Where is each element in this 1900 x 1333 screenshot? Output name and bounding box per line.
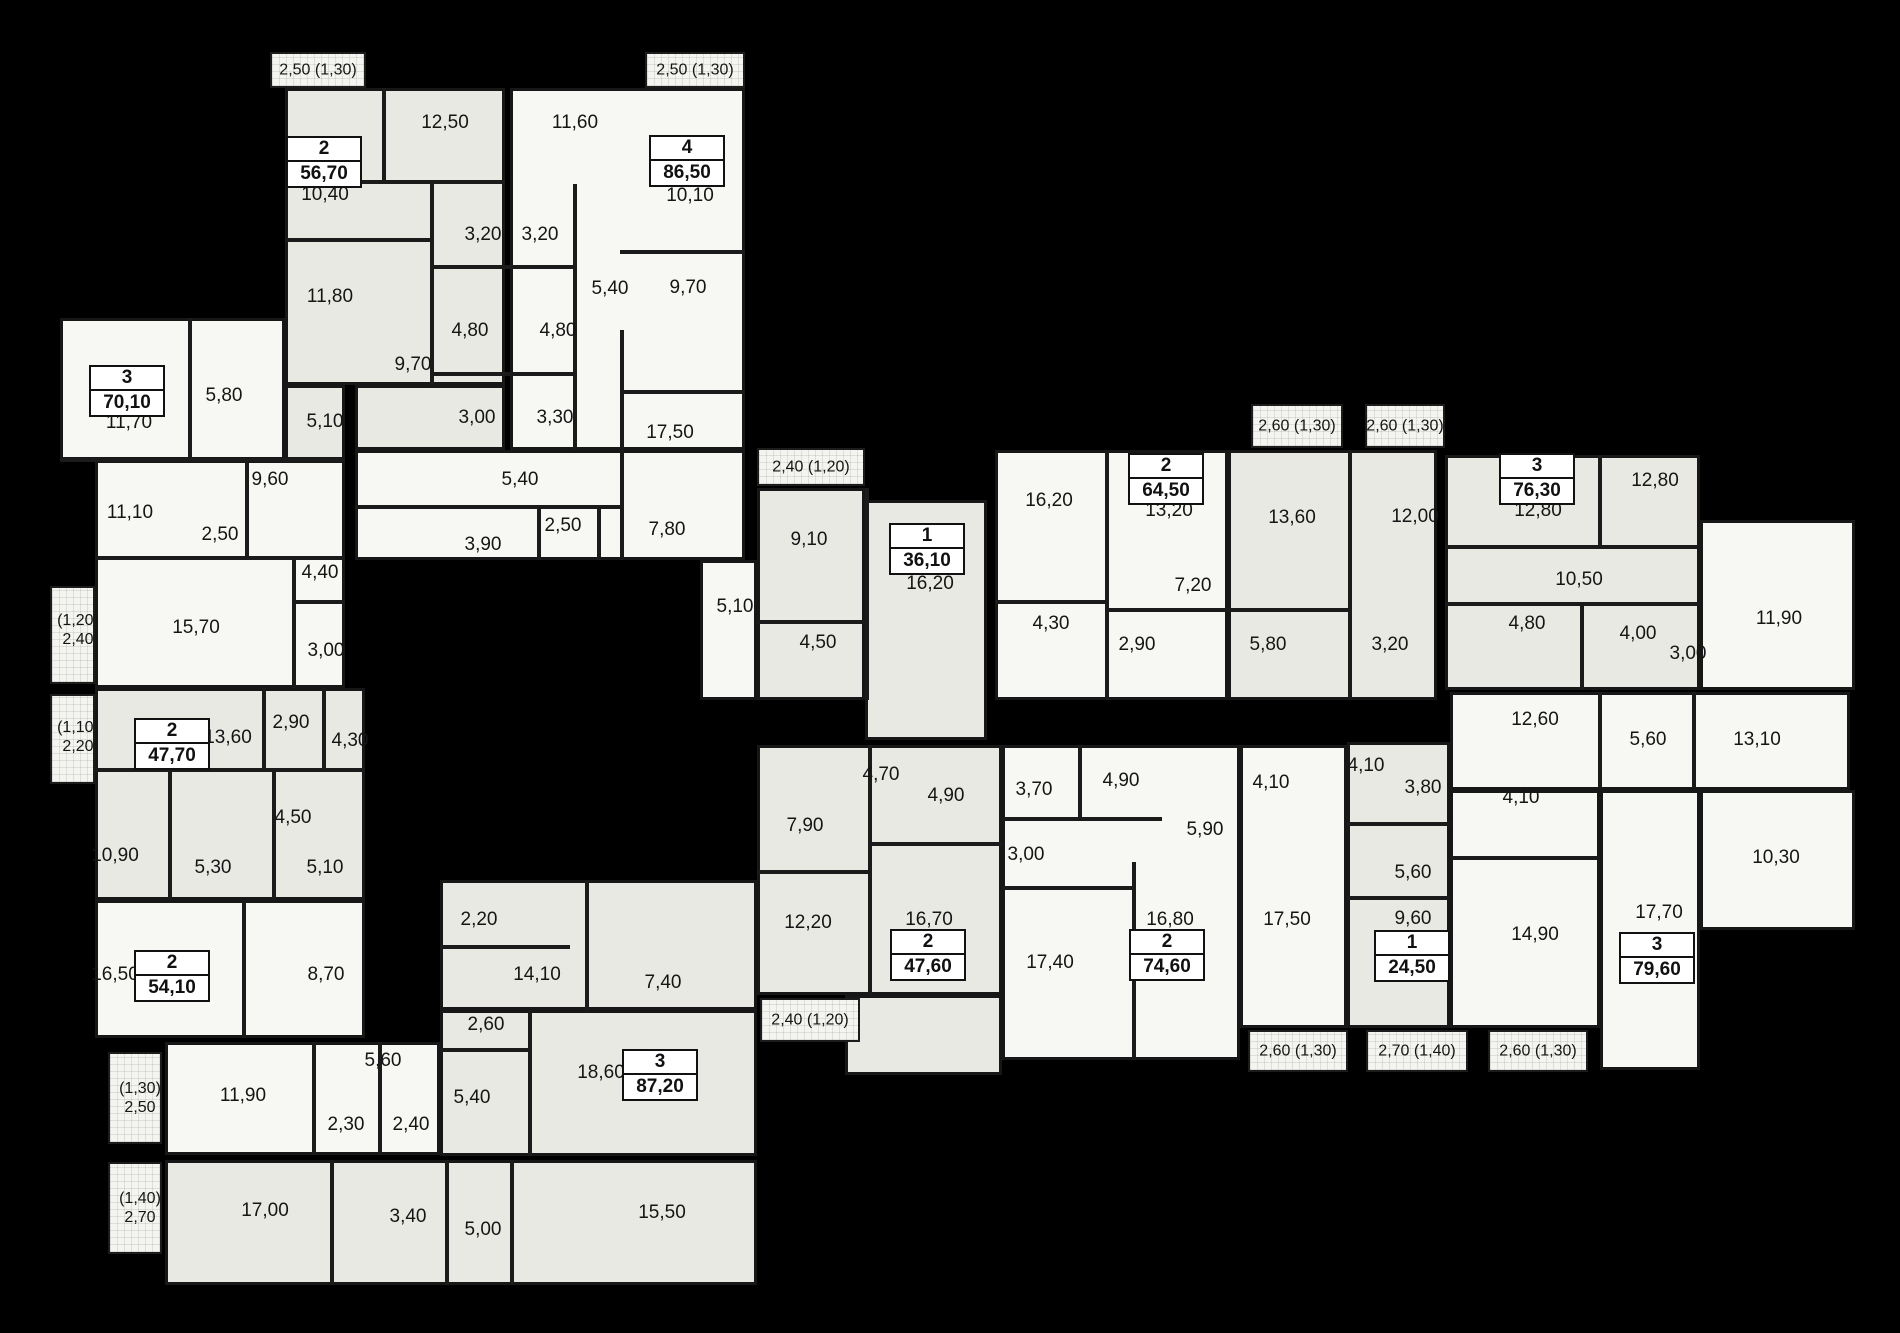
room-area-label: 7,40: [645, 972, 682, 994]
apartment-total-area: 56,70: [288, 162, 360, 186]
room-area-label: 4,50: [800, 632, 837, 654]
apartment-block: [1600, 790, 1700, 1070]
apartment-info-box: 124,50: [1374, 930, 1450, 982]
apartment-total-area: 54,10: [136, 976, 208, 1000]
apartment-total-area: 76,30: [1501, 479, 1573, 503]
interior-wall: [1105, 450, 1109, 602]
room-area-label: 5,30: [195, 857, 232, 879]
interior-wall: [292, 558, 296, 688]
balcony-area-label: 2,50 (1,30): [279, 60, 356, 79]
room-area-label: 5,00: [465, 1219, 502, 1241]
room-area-label: 2,40: [393, 1114, 430, 1136]
apartment-total-area: 36,10: [891, 549, 963, 573]
room-area-label: 3,40: [390, 1206, 427, 1228]
room-area-label: 5,80: [1250, 634, 1287, 656]
interior-wall: [330, 1160, 334, 1285]
room-area-label: 7,20: [1175, 575, 1212, 597]
apartment-block: [1450, 790, 1600, 1028]
room-area-label: 11,80: [307, 286, 353, 308]
room-area-label: 5,10: [717, 596, 754, 618]
balcony-area-label: 2,40 (1,20): [772, 457, 849, 476]
room-area-label: 3,90: [465, 534, 502, 556]
apartment-total-area: 79,60: [1621, 958, 1693, 982]
room-area-label: 14,10: [513, 964, 561, 986]
room-area-label: 16,70: [905, 909, 953, 931]
room-area-label: 10,30: [1752, 847, 1800, 869]
apartment-info-box: 379,60: [1619, 932, 1695, 984]
apartment-block: [1700, 520, 1855, 690]
apartment-total-area: 74,60: [1131, 955, 1203, 979]
apartment-total-area: 70,10: [91, 391, 163, 415]
room-area-label: 4,80: [452, 320, 489, 342]
interior-wall: [620, 250, 745, 254]
interior-wall: [585, 880, 589, 1012]
room-area-label: 11,90: [1756, 608, 1802, 630]
apartment-room-count: 3: [624, 1051, 696, 1075]
interior-wall: [1347, 822, 1450, 826]
room-area-label: 4,30: [1033, 613, 1070, 635]
room-area-label: 4,30: [332, 730, 369, 752]
room-area-label: 17,50: [1263, 909, 1311, 931]
room-area-label: 5,60: [365, 1050, 402, 1072]
interior-wall: [1002, 886, 1132, 890]
interior-wall: [995, 600, 1108, 604]
interior-wall: [445, 1160, 449, 1285]
apartment-info-box: 387,20: [622, 1049, 698, 1101]
room-area-label: 9,70: [395, 354, 432, 376]
interior-wall: [382, 88, 386, 182]
room-area-label: 10,50: [1555, 569, 1603, 591]
interior-wall: [262, 688, 266, 770]
balcony-area-label: (1,30) 2,50: [119, 1079, 161, 1117]
room-area-label: 16,50: [91, 964, 139, 986]
room-area-label: 3,00: [459, 407, 496, 429]
apartment-block: [757, 488, 865, 700]
room-area-label: 10,90: [91, 845, 139, 867]
room-area-label: 3,00: [308, 640, 345, 662]
room-area-label: 11,90: [220, 1085, 266, 1107]
interior-wall: [757, 870, 870, 874]
room-area-label: 4,80: [540, 320, 577, 342]
room-area-label: 5,10: [307, 411, 344, 433]
apartment-room-count: 2: [892, 931, 964, 955]
room-area-label: 2,90: [273, 712, 310, 734]
apartment-info-box: 247,60: [890, 929, 966, 981]
room-area-label: 3,20: [522, 224, 559, 246]
room-area-label: 3,20: [1372, 634, 1409, 656]
apartment-total-area: 86,50: [651, 161, 723, 185]
interior-wall: [537, 505, 541, 560]
apartment-room-count: 3: [1501, 455, 1573, 479]
apartment-info-box: 274,60: [1129, 929, 1205, 981]
apartment-total-area: 47,60: [892, 955, 964, 979]
apartment-room-count: 1: [1376, 932, 1448, 956]
room-area-label: 5,60: [1630, 729, 1667, 751]
room-area-label: 12,20: [784, 912, 832, 934]
apartment-room-count: 2: [136, 720, 208, 744]
apartment-room-count: 1: [891, 525, 963, 549]
room-area-label: 2,90: [1119, 634, 1156, 656]
room-area-label: 2,20: [461, 909, 498, 931]
interior-wall: [440, 1048, 530, 1052]
interior-wall: [285, 238, 430, 242]
interior-wall: [1348, 450, 1352, 700]
interior-wall: [168, 770, 172, 900]
apartment-info-box: 376,30: [1499, 453, 1575, 505]
room-area-label: 3,70: [1016, 779, 1053, 801]
interior-wall: [272, 770, 276, 900]
apartment-block: [700, 560, 757, 700]
room-area-label: 4,10: [1503, 787, 1540, 809]
apartment-info-box: 370,10: [89, 365, 165, 417]
room-area-label: 16,20: [906, 573, 954, 595]
balcony-area-label: 2,60 (1,30): [1499, 1041, 1576, 1060]
room-area-label: 3,00: [1670, 643, 1707, 665]
room-area-label: 9,10: [791, 529, 828, 551]
room-area-label: 9,60: [1395, 908, 1432, 930]
room-area-label: 5,60: [1395, 862, 1432, 884]
interior-wall: [292, 600, 345, 604]
room-area-label: 5,40: [502, 469, 539, 491]
room-area-label: 4,40: [302, 562, 339, 584]
room-area-label: 2,50: [545, 515, 582, 537]
interior-wall: [1105, 600, 1109, 700]
interior-wall: [1445, 545, 1700, 549]
interior-wall: [528, 1010, 532, 1156]
apartment-room-count: 2: [288, 138, 360, 162]
room-area-label: 3,30: [537, 407, 574, 429]
room-area-label: 2,50: [202, 524, 239, 546]
interior-wall: [1598, 692, 1602, 788]
room-area-label: 5,80: [206, 385, 243, 407]
interior-wall: [95, 556, 345, 560]
apartment-total-area: 24,50: [1376, 956, 1448, 980]
room-area-label: 13,60: [1268, 507, 1316, 529]
room-area-label: 13,10: [1733, 729, 1781, 751]
interior-wall: [1692, 692, 1696, 788]
room-area-label: 12,60: [1511, 709, 1559, 731]
interior-wall: [430, 372, 573, 376]
room-area-label: 10,10: [666, 185, 714, 207]
room-area-label: 13,60: [204, 727, 252, 749]
room-area-label: 4,50: [275, 807, 312, 829]
room-area-label: 11,60: [552, 112, 598, 134]
interior-wall: [440, 945, 570, 949]
room-area-label: 11,10: [107, 502, 153, 524]
balcony-area-label: 2,50 (1,30): [656, 60, 733, 79]
room-area-label: 17,00: [241, 1200, 289, 1222]
room-area-label: 3,20: [465, 224, 502, 246]
apartment-info-box: 136,10: [889, 523, 965, 575]
room-area-label: 5,10: [307, 857, 344, 879]
room-area-label: 16,20: [1025, 490, 1073, 512]
interior-wall: [245, 460, 249, 558]
room-area-label: 5,40: [454, 1087, 491, 1109]
interior-wall: [510, 1160, 514, 1285]
interior-wall: [1232, 608, 1352, 612]
apartment-room-count: 3: [1621, 934, 1693, 958]
balcony-area-label: 2,60 (1,30): [1258, 416, 1335, 435]
interior-wall: [242, 900, 246, 1038]
room-area-label: 7,80: [649, 519, 686, 541]
apartment-room-count: 4: [651, 137, 723, 161]
room-area-label: 15,50: [638, 1202, 686, 1224]
apartment-total-area: 64,50: [1130, 479, 1202, 503]
interior-wall: [60, 458, 345, 462]
apartment-block: [845, 995, 1002, 1075]
balcony-area-label: 2,40 (1,20): [771, 1010, 848, 1029]
interior-wall: [188, 318, 192, 458]
room-area-label: 15,70: [172, 617, 220, 639]
apartment-info-box: 486,50: [649, 135, 725, 187]
apartment-info-box: 264,50: [1128, 453, 1204, 505]
room-area-label: 14,90: [1511, 924, 1559, 946]
room-area-label: 2,60: [468, 1014, 505, 1036]
interior-wall: [865, 488, 869, 700]
interior-wall: [355, 505, 620, 509]
apartment-room-count: 3: [91, 367, 163, 391]
interior-wall: [1445, 602, 1700, 606]
room-area-label: 4,10: [1348, 755, 1385, 777]
apartment-room-count: 2: [1131, 931, 1203, 955]
balcony-area-label: 2,70 (1,40): [1378, 1041, 1455, 1060]
room-area-label: 4,00: [1620, 623, 1657, 645]
room-area-label: 4,10: [1253, 772, 1290, 794]
interior-wall: [757, 620, 865, 624]
room-area-label: 17,40: [1026, 952, 1074, 974]
room-area-label: 4,90: [1103, 770, 1140, 792]
room-area-label: 3,00: [1008, 844, 1045, 866]
room-area-label: 8,70: [308, 964, 345, 986]
balcony-area-label: 2,60 (1,30): [1366, 416, 1443, 435]
apartment-block: [1228, 450, 1437, 700]
interior-wall: [597, 505, 601, 560]
apartment-total-area: 47,70: [136, 744, 208, 768]
interior-wall: [1580, 606, 1584, 690]
room-area-label: 16,80: [1146, 909, 1194, 931]
room-area-label: 12,50: [421, 112, 469, 134]
room-area-label: 3,80: [1405, 777, 1442, 799]
apartment-total-area: 87,20: [624, 1075, 696, 1099]
apartment-room-count: 2: [1130, 455, 1202, 479]
interior-wall: [1002, 817, 1162, 821]
room-area-label: 4,80: [1509, 613, 1546, 635]
apartment-info-box: 256,70: [286, 136, 362, 188]
interior-wall: [1598, 455, 1602, 547]
interior-wall: [322, 688, 326, 770]
interior-wall: [1105, 608, 1232, 612]
apartment-room-count: 2: [136, 952, 208, 976]
interior-wall: [312, 1042, 316, 1155]
room-area-label: 2,30: [328, 1114, 365, 1136]
apartment-info-box: 254,10: [134, 950, 210, 1002]
room-area-label: 4,90: [928, 785, 965, 807]
room-area-label: 9,70: [670, 277, 707, 299]
balcony-area-label: (1,10) 2,20: [57, 718, 99, 756]
room-area-label: 9,60: [252, 469, 289, 491]
interior-wall: [1450, 856, 1600, 860]
interior-wall: [620, 390, 745, 394]
room-area-label: 12,80: [1631, 470, 1679, 492]
room-area-label: 7,90: [787, 815, 824, 837]
room-area-label: 12,00: [1391, 506, 1439, 528]
room-area-label: 5,40: [592, 278, 629, 300]
apartment-info-box: 247,70: [134, 718, 210, 770]
room-area-label: 17,50: [646, 422, 694, 444]
balcony-area-label: (1,20) 2,40: [57, 611, 99, 649]
interior-wall: [1078, 745, 1082, 819]
balcony-area-label: 2,60 (1,30): [1259, 1041, 1336, 1060]
interior-wall: [573, 184, 577, 450]
interior-wall: [1347, 896, 1450, 900]
floor-plan-canvas: 12,5011,6010,4010,103,203,205,409,7011,8…: [0, 0, 1900, 1333]
room-area-label: 17,70: [1635, 902, 1683, 924]
balcony-area-label: (1,40) 2,70: [119, 1189, 161, 1227]
interior-wall: [620, 330, 624, 560]
room-area-label: 5,90: [1187, 819, 1224, 841]
interior-wall: [870, 842, 1002, 846]
room-area-label: 18,60: [577, 1062, 625, 1084]
room-area-label: 4,70: [863, 764, 900, 786]
interior-wall: [430, 265, 573, 269]
